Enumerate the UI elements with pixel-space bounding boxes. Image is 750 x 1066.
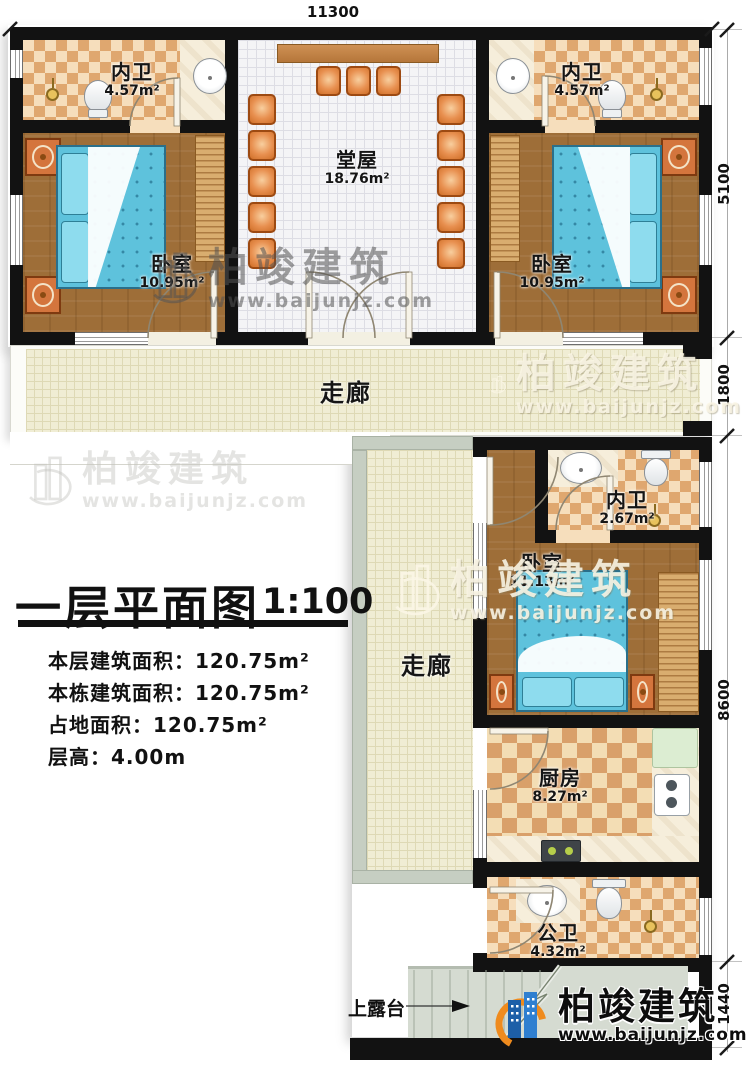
room-name: 内卫 (587, 490, 667, 511)
nightstand-dot (676, 154, 682, 160)
shower-drain-icon (644, 920, 657, 933)
window-bath-mid-east (699, 462, 712, 527)
logo-text: 柏竣建筑 www.baijunjz.com (558, 988, 748, 1045)
bedroom-lower-floor-a (487, 450, 535, 543)
chair (437, 238, 465, 269)
burner (548, 847, 556, 855)
wall-hall-left (225, 40, 238, 332)
toilet-tank (602, 109, 622, 118)
chair (437, 130, 465, 161)
logo-url: www.baijunjz.com (558, 1025, 748, 1045)
chair (248, 94, 276, 125)
window-bedroom-left (10, 195, 23, 265)
dim-right-1800: 1800 (715, 353, 731, 417)
dim-right-8600: 8600 (715, 668, 731, 732)
chair (316, 66, 341, 96)
wall-bedroom-kitchen (473, 715, 712, 728)
room-label-bath-top-right: 内卫 4.57m² (542, 62, 622, 99)
dim-ext (712, 435, 742, 436)
door-gap-bedroom-right (495, 332, 563, 345)
room-label-bath-public: 公卫 4.32m² (518, 923, 598, 960)
burner (565, 847, 573, 855)
drain-stem (650, 910, 652, 920)
room-area: 2.67m² (587, 511, 667, 527)
burner (666, 780, 677, 791)
window-bath-tr (699, 48, 712, 105)
wall-hall-right (476, 40, 489, 332)
shower-drain-icon (46, 88, 59, 101)
stove (654, 774, 690, 816)
room-area: 10.95m² (132, 275, 212, 291)
bed-pillow (574, 677, 624, 707)
wall-wing-west (473, 618, 487, 728)
chair (248, 202, 276, 233)
chair (437, 94, 465, 125)
chair (248, 238, 276, 269)
sink-icon (496, 58, 530, 94)
room-area: 18.76m² (307, 171, 407, 187)
chair (248, 130, 276, 161)
corridor-rail-bottom (352, 870, 473, 884)
door-gap-bath-tl (130, 120, 180, 133)
logo-tower (524, 992, 537, 1038)
wall-wing-north (473, 437, 712, 450)
wall-stub (683, 345, 712, 359)
stairs-annotation: 上露台 (348, 994, 405, 1021)
room-label-hall: 堂屋 18.76m² (307, 150, 407, 187)
info-land-area: 占地面积：120.75m² (48, 709, 268, 738)
room-name: 公卫 (518, 923, 598, 944)
room-name: 卧室 (502, 553, 582, 574)
window-bedroom-lower-east (699, 560, 712, 650)
watermark-url: www.baijunjz.com (82, 490, 308, 512)
wardrobe (195, 135, 225, 262)
bed (516, 570, 628, 712)
chair (346, 66, 371, 96)
bed-pillow (61, 221, 89, 283)
room-name: 卧室 (512, 254, 592, 275)
chair (376, 66, 401, 96)
info-floor-area: 本层建筑面积：120.75m² (48, 645, 310, 674)
nightstand-dot (640, 689, 646, 695)
faucet-dot (545, 901, 549, 905)
chair (437, 166, 465, 197)
room-name: 堂屋 (307, 150, 407, 171)
drain-stem (656, 78, 658, 88)
door-gap-hall (308, 332, 410, 345)
faucet-dot (208, 76, 212, 80)
toilet-tank (88, 109, 108, 118)
bed-pillow (522, 677, 572, 707)
room-name: 内卫 (542, 62, 622, 83)
room-name: 卧室 (132, 254, 212, 275)
logo-building-icon (494, 988, 552, 1052)
wall-kitchen-bath (473, 862, 712, 877)
wall-wing-west (473, 450, 487, 457)
door-gap-bath-tr (545, 120, 595, 133)
hall-table (277, 44, 439, 63)
room-label-bath-mid: 内卫 2.67m² (587, 490, 667, 527)
room-name: 走廊 (306, 381, 386, 406)
wall-stub (683, 421, 712, 436)
window-bath-tl (10, 50, 23, 78)
wall-top (10, 27, 712, 40)
nightstand-dot (40, 292, 46, 298)
window-bedroom-right (699, 195, 712, 265)
room-area: 10.95m² (512, 275, 592, 291)
sink-icon (527, 885, 567, 917)
title-underline (18, 620, 348, 627)
nightstand (661, 276, 697, 314)
logo-brand: 柏竣建筑 (558, 988, 748, 1025)
veranda-slab-edge (10, 432, 390, 465)
info-floor-height: 层高：4.00m (48, 741, 186, 770)
dim-ext (712, 29, 742, 30)
dim-ext (712, 337, 742, 338)
wall-bath-mid-west (535, 448, 548, 543)
bed-pillow (629, 153, 657, 215)
room-area: 4.57m² (92, 83, 172, 99)
sink-icon (193, 58, 227, 94)
kitchen-counter-bottom (487, 836, 699, 862)
logo-swoosh (494, 994, 551, 1052)
dim-right-5100: 5100 (715, 152, 731, 216)
fridge (652, 728, 698, 768)
room-area: 8.27m² (520, 789, 600, 805)
door-gap-bath-mid (556, 530, 610, 543)
burner (666, 797, 677, 808)
room-area: 4.32m² (518, 944, 598, 960)
room-name: 走廊 (387, 654, 467, 679)
chair (437, 202, 465, 233)
nightstand (630, 674, 655, 710)
sink-icon (560, 452, 602, 484)
room-area: 4.57m² (542, 83, 622, 99)
room-label-corridor-top: 走廊 (306, 381, 386, 406)
room-area: 11.13m² (502, 574, 582, 590)
faucet-dot (511, 76, 515, 80)
window-bath-public-east (699, 898, 712, 955)
faucet-dot (579, 468, 583, 472)
nightstand-dot (499, 689, 505, 695)
shower-drain-icon (650, 88, 663, 101)
window-bedroom-right-south (555, 332, 643, 345)
toilet-icon (596, 887, 622, 919)
nightstand (661, 138, 697, 176)
room-label-bedroom-lower: 卧室 11.13m² (502, 553, 582, 590)
corridor-rail-top (352, 436, 473, 450)
dim-ext (712, 961, 742, 962)
window-bedroom-lower-west (473, 523, 487, 618)
nightstand-dot (40, 154, 46, 160)
wall-bath-public-south (473, 958, 712, 972)
brand-logo: 柏竣建筑 www.baijunjz.com (494, 988, 748, 1052)
room-label-bath-top-left: 内卫 4.57m² (92, 62, 172, 99)
bed-pillow (629, 221, 657, 283)
wall-bath-tl-south (23, 120, 225, 133)
chair (248, 166, 276, 197)
logo-tower (508, 1000, 521, 1038)
toilet-icon (644, 458, 668, 486)
info-building-area: 本栋建筑面积：120.75m² (48, 677, 310, 706)
nightstand (489, 674, 514, 710)
room-label-bedroom-right: 卧室 10.95m² (512, 254, 592, 291)
floor-plan: 11300 5100 1800 8600 1440 (0, 0, 750, 1066)
window-kitchen-west (473, 790, 487, 858)
room-name: 厨房 (520, 768, 600, 789)
drawing-scale: 1:100 (262, 582, 373, 622)
door-gap-bedroom-left (148, 332, 216, 345)
nightstand-dot (676, 292, 682, 298)
room-label-kitchen: 厨房 8.27m² (520, 768, 600, 805)
bed-pillow (61, 153, 89, 215)
room-name: 内卫 (92, 62, 172, 83)
room-label-bedroom-left: 卧室 10.95m² (132, 254, 212, 291)
dim-top-label: 11300 (300, 3, 366, 21)
drain-stem (52, 78, 54, 88)
wardrobe (658, 572, 699, 712)
wardrobe (490, 135, 520, 262)
page-title: 一层平面图 (15, 572, 260, 638)
room-label-corridor-side: 走廊 (387, 654, 467, 679)
corridor-rail-left (352, 450, 367, 884)
cooktop (541, 840, 581, 862)
